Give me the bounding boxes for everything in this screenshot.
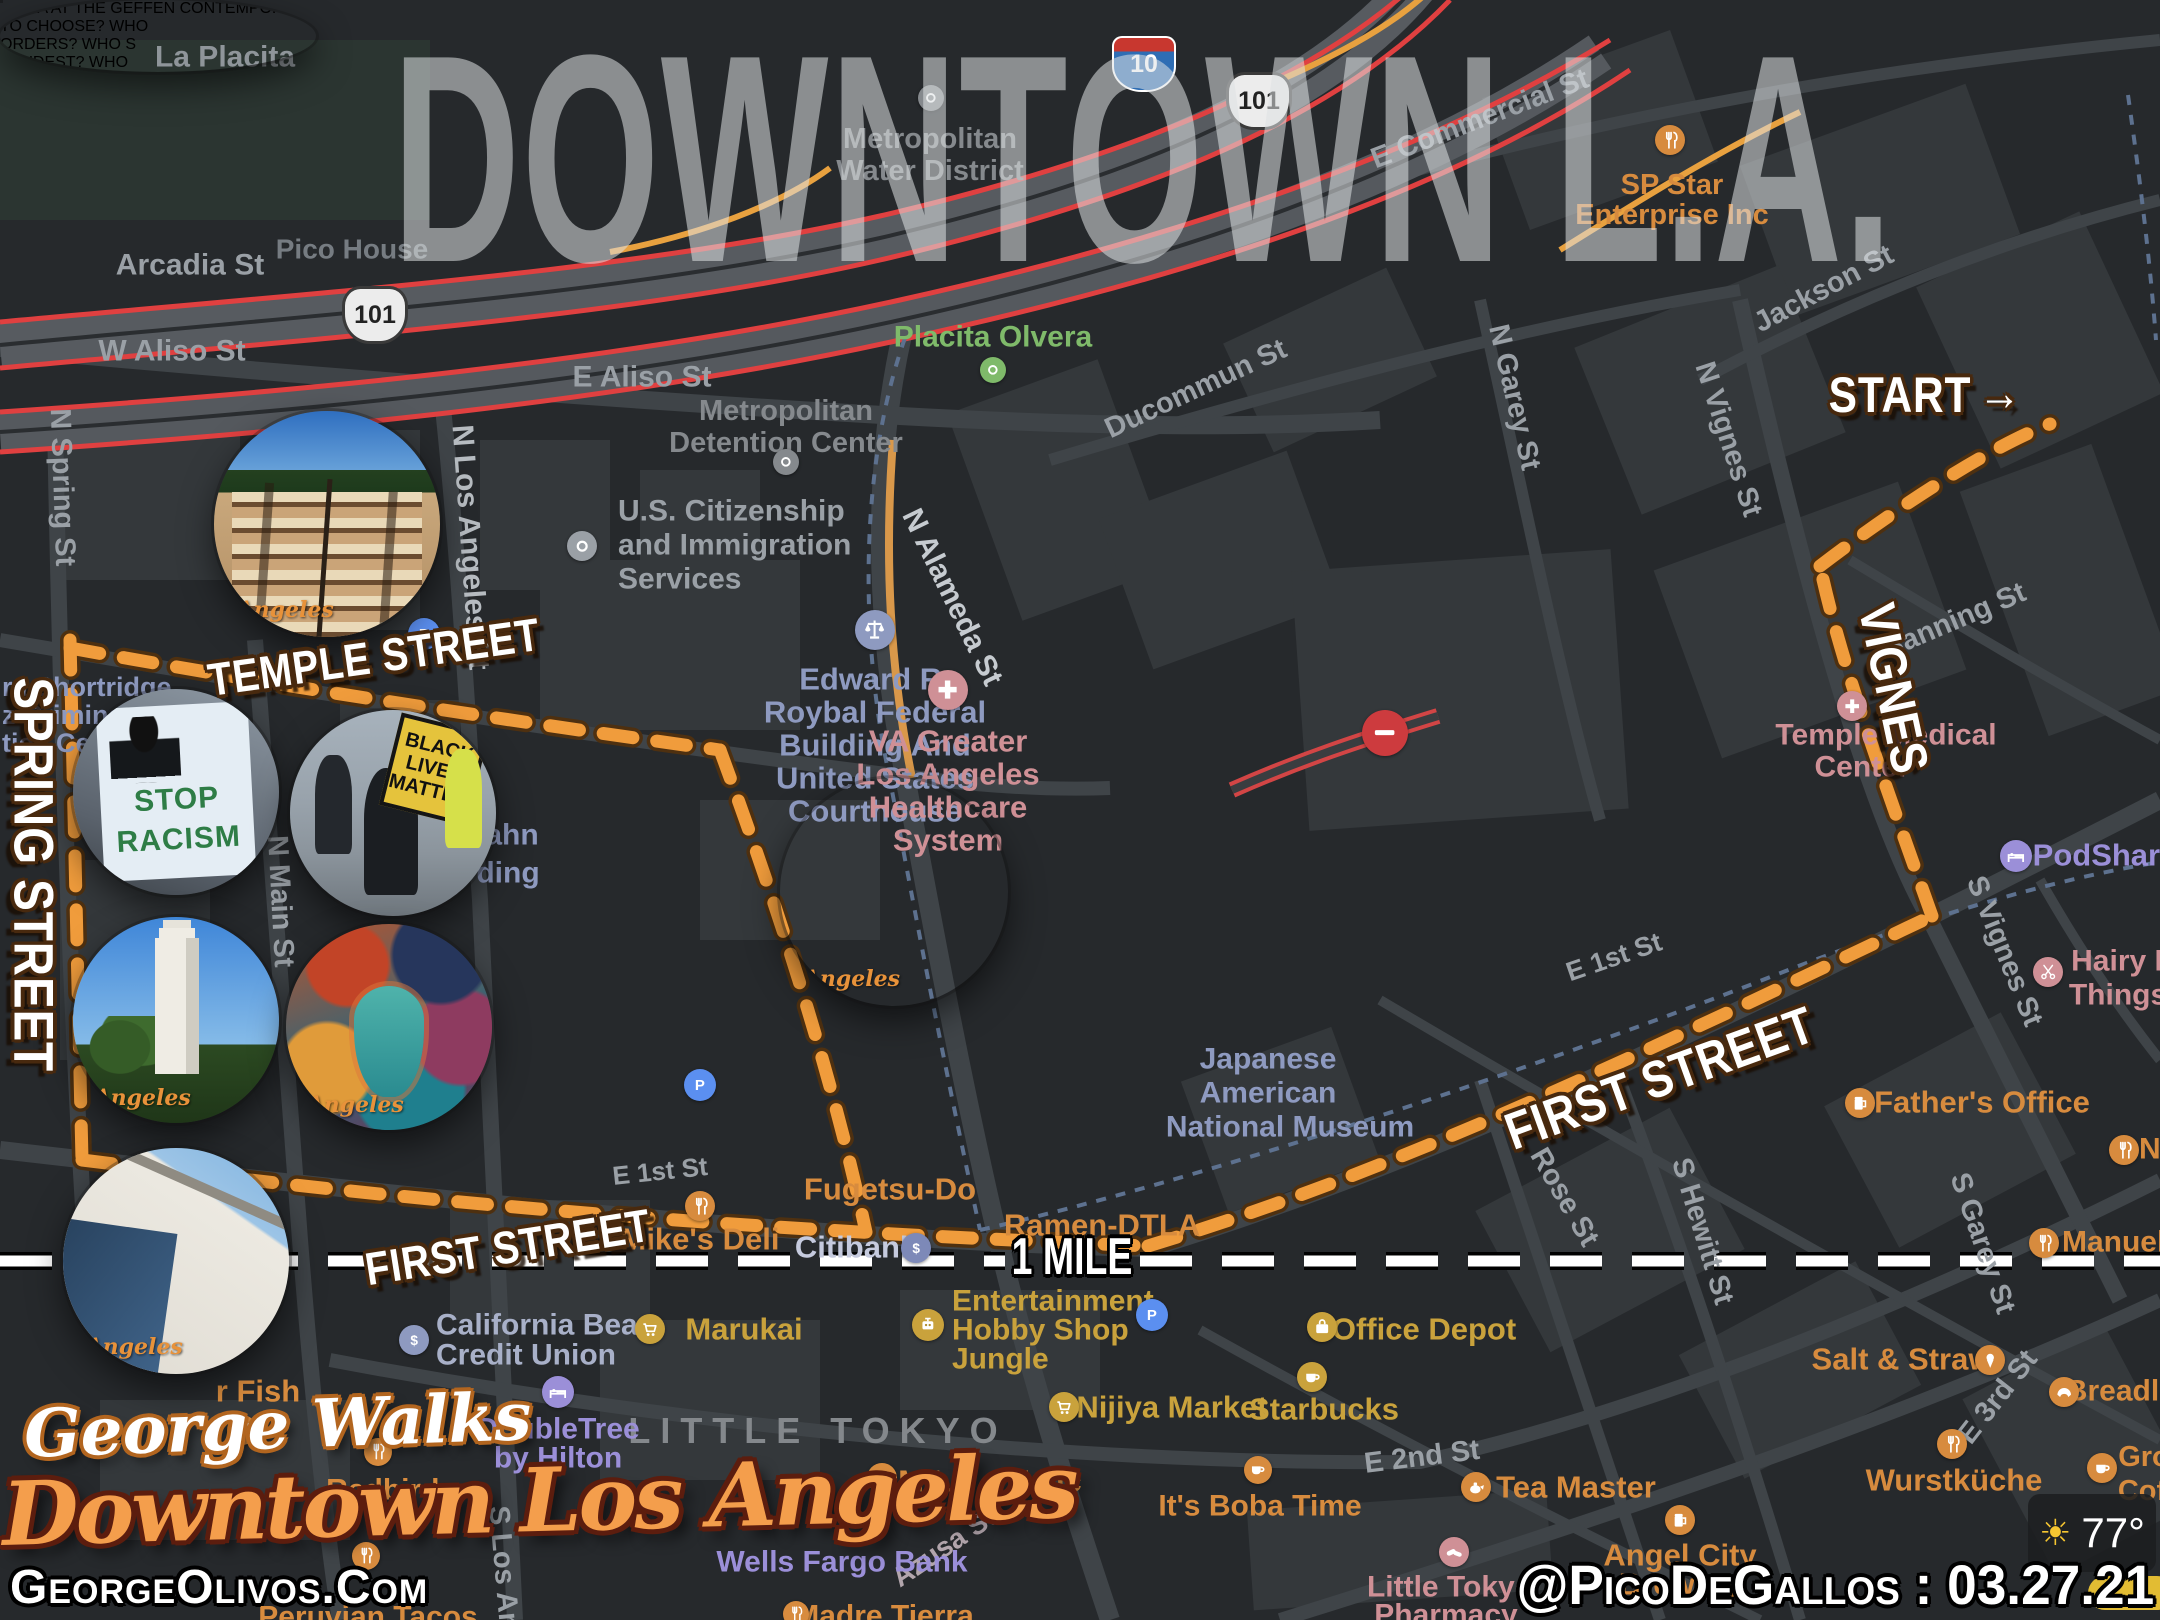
temperature: 77° bbox=[2081, 1509, 2145, 1557]
photo-watermark: Angeles bbox=[86, 1334, 183, 1360]
placita-olvera-icon[interactable] bbox=[980, 357, 1006, 383]
map-label[interactable]: Metropolitan bbox=[699, 395, 873, 428]
parking-icon[interactable]: P bbox=[1136, 1299, 1168, 1331]
nijiya-market-icon[interactable] bbox=[1049, 1392, 1079, 1422]
map-label[interactable]: Gro bbox=[2118, 1441, 2160, 1474]
hairy-things-icon[interactable] bbox=[2033, 957, 2063, 987]
stop-racism-sign: STOP RACISM bbox=[95, 702, 256, 883]
sign-text: STOP bbox=[133, 782, 220, 820]
photo-stop-racism-sign: STOP RACISM bbox=[73, 689, 279, 895]
photo-city-hall: Angeles bbox=[73, 917, 279, 1123]
map-label[interactable]: Ni bbox=[2139, 1132, 2160, 1166]
podshare-icon[interactable] bbox=[2000, 840, 2032, 872]
map-label[interactable]: National Museum bbox=[1166, 1110, 1414, 1144]
courthouse-icon[interactable] bbox=[855, 610, 895, 650]
photo-monument: Angeles bbox=[780, 778, 1008, 1006]
office-depot-icon[interactable] bbox=[1307, 1312, 1337, 1342]
hobby-shop-icon[interactable] bbox=[912, 1309, 944, 1341]
va-healthcare-icon[interactable] bbox=[928, 670, 968, 710]
map-label[interactable]: Services bbox=[618, 562, 741, 596]
downtown-la-title: DOWNTOWN L.A. bbox=[392, 0, 1894, 329]
map-label[interactable]: Pharmacy bbox=[1374, 1598, 1517, 1620]
pharmacy-icon[interactable] bbox=[1439, 1537, 1469, 1567]
starbucks-icon[interactable] bbox=[1297, 1362, 1327, 1392]
maps-app-screen: { "status_bar": {"time":"2:08 PM","date"… bbox=[0, 0, 2160, 1620]
map-label[interactable]: American bbox=[1200, 1076, 1337, 1110]
angel-city-brewery-icon[interactable] bbox=[1665, 1505, 1695, 1535]
blm-sign: BLACK LIVES MATTER bbox=[379, 713, 490, 827]
tea-master-icon[interactable] bbox=[1461, 1472, 1491, 1502]
coffee-icon[interactable] bbox=[2087, 1453, 2117, 1483]
mikes-deli-icon[interactable] bbox=[685, 1191, 715, 1221]
scale-bar-label: 1 MILE bbox=[1012, 1227, 1133, 1287]
map-label[interactable]: Nijiya Market bbox=[1076, 1389, 1267, 1425]
map-label[interactable]: VA Greater bbox=[869, 723, 1028, 759]
map-label[interactable]: N Spring St bbox=[43, 408, 81, 567]
svg-text:P: P bbox=[1147, 1307, 1157, 1324]
map-label[interactable]: E Aliso St bbox=[573, 360, 712, 394]
sign-text: RACISM bbox=[116, 821, 242, 861]
marukai-icon[interactable] bbox=[635, 1314, 665, 1344]
salt-straw-icon[interactable] bbox=[1975, 1345, 2005, 1375]
map-label[interactable]: Marukai bbox=[685, 1311, 802, 1347]
photo-watermark: Angeles bbox=[237, 597, 334, 623]
map-label[interactable]: Madre Tierra bbox=[794, 1599, 974, 1620]
map-label[interactable]: Hairy L bbox=[2071, 944, 2160, 978]
map-label[interactable]: ding bbox=[476, 856, 539, 890]
map-label[interactable]: It's Boba Time bbox=[1158, 1489, 1361, 1523]
uscis-icon[interactable] bbox=[567, 531, 597, 561]
map-label[interactable]: Office Depot bbox=[1332, 1311, 1516, 1347]
boba-icon[interactable] bbox=[1244, 1456, 1272, 1484]
parking-icon[interactable]: P bbox=[684, 1069, 716, 1101]
photo-stairs: Angeles bbox=[214, 411, 440, 637]
map-label[interactable]: Fugetsu-Do bbox=[804, 1171, 976, 1207]
start-arrow: → bbox=[1978, 364, 2021, 422]
wurstkuche-icon[interactable] bbox=[1937, 1429, 1967, 1459]
fathers-office-icon[interactable] bbox=[1845, 1088, 1875, 1118]
svg-text:$: $ bbox=[912, 1241, 920, 1256]
doubletree-icon[interactable] bbox=[542, 1376, 574, 1408]
manuela-icon[interactable] bbox=[2029, 1228, 2059, 1258]
map-label[interactable]: Breadlan bbox=[2066, 1374, 2160, 1408]
map-label[interactable]: U.S. Citizenship bbox=[618, 494, 845, 528]
photo-mural: Angeles bbox=[286, 924, 492, 1130]
citibank-icon[interactable]: $ bbox=[901, 1233, 931, 1263]
map-label[interactable]: W Aliso St bbox=[98, 334, 245, 368]
photo-watermark: Angeles bbox=[307, 1092, 404, 1118]
credit-website: GeorgeOlivos.Com bbox=[10, 1560, 428, 1615]
map-label[interactable]: Japanese bbox=[1200, 1042, 1337, 1076]
detention-center-icon[interactable] bbox=[773, 449, 799, 475]
route-label-spring-street: SPRING STREET bbox=[2, 677, 67, 1072]
map-label[interactable]: California Bear bbox=[436, 1308, 649, 1342]
map-label[interactable]: N Main St bbox=[260, 835, 300, 969]
temple-medical-icon[interactable] bbox=[1837, 691, 1867, 721]
map-label[interactable]: Salt & Straw bbox=[1812, 1341, 1993, 1377]
svg-text:$: $ bbox=[410, 1333, 418, 1348]
route-label-start: START bbox=[1829, 366, 1972, 424]
map-label[interactable]: Tea Master bbox=[1496, 1469, 1656, 1505]
map-label[interactable]: PodShare bbox=[2033, 837, 2160, 873]
map-label[interactable]: Things bbox=[2069, 978, 2160, 1012]
map-label[interactable]: Arcadia St bbox=[116, 248, 264, 282]
map-label[interactable]: Jungle bbox=[952, 1342, 1049, 1376]
photo-watermark: Angeles bbox=[94, 1085, 191, 1111]
credit-social-handle: @PicoDeGallos : 03.27.21 bbox=[1516, 1552, 2154, 1617]
photo-building-corner: Angeles bbox=[63, 1148, 289, 1374]
map-label[interactable]: Credit Union bbox=[436, 1338, 616, 1372]
credit-union-icon[interactable]: $ bbox=[399, 1325, 429, 1355]
map-label[interactable]: Wurstküche bbox=[1866, 1462, 2043, 1498]
photo-watermark: Angeles bbox=[803, 966, 900, 992]
breadland-icon[interactable] bbox=[2049, 1377, 2079, 1407]
map-label[interactable]: Starbucks bbox=[1249, 1391, 1399, 1427]
map-label[interactable]: Citibank bbox=[795, 1229, 917, 1265]
photo-blm-march: BLACK LIVES MATTER bbox=[290, 710, 496, 916]
road-closure-icon[interactable] bbox=[1362, 710, 1408, 756]
photo-moca-billboard: MOCA AT THE GEFFEN CONTEMPORARY TO CHOOS… bbox=[0, 0, 316, 72]
ni-restaurant-icon[interactable] bbox=[2109, 1135, 2139, 1165]
madre-tierra-icon[interactable] bbox=[783, 1601, 809, 1620]
map-label[interactable]: Manuela bbox=[2062, 1225, 2160, 1259]
sun-icon: ☀ bbox=[2039, 1512, 2071, 1554]
map-label[interactable]: Wells Fargo Bank bbox=[716, 1545, 967, 1579]
map-label[interactable]: and Immigration bbox=[618, 528, 851, 562]
svg-text:P: P bbox=[695, 1077, 705, 1094]
map-label[interactable]: Father's Office bbox=[1874, 1084, 2090, 1120]
